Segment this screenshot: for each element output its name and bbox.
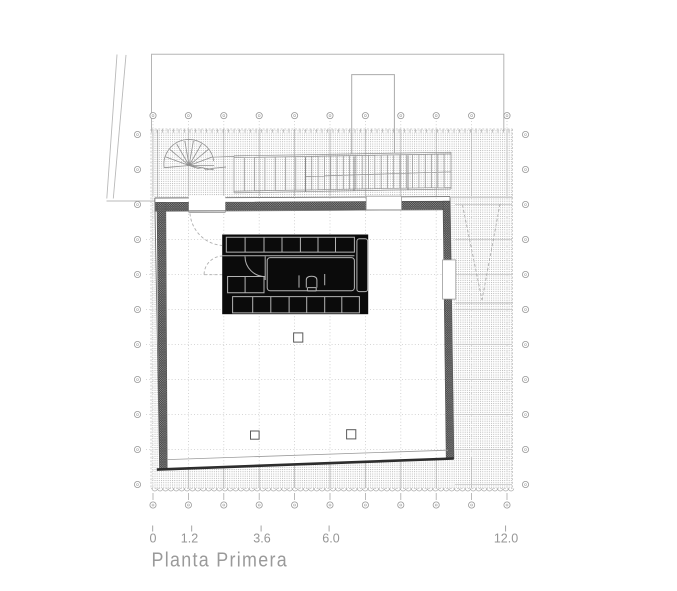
svg-text:12.0: 12.0 [494,532,518,546]
svg-text:0: 0 [150,532,157,546]
svg-text:6.0: 6.0 [322,532,339,546]
svg-text:3.6: 3.6 [253,532,270,546]
svg-text:Planta Primera: Planta Primera [152,549,289,572]
svg-text:1.2: 1.2 [181,532,198,546]
